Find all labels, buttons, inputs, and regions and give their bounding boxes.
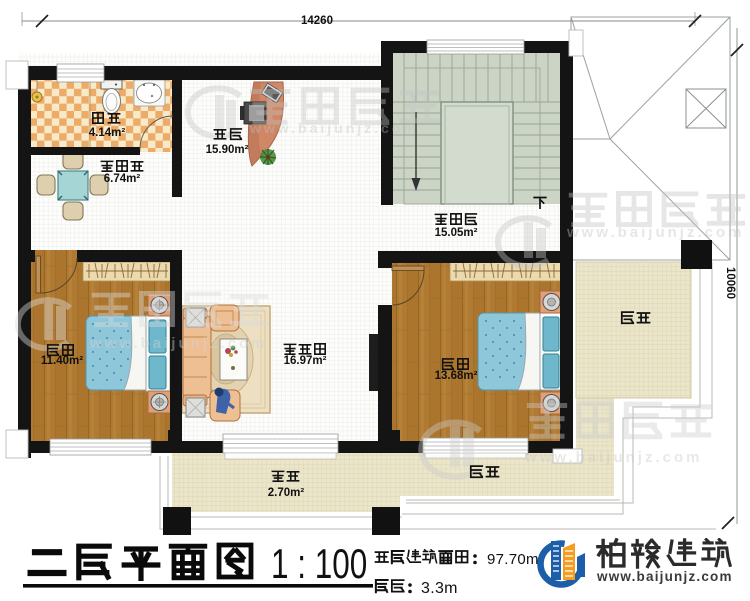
svg-text:13.68m²: 13.68m²: [435, 370, 478, 382]
svg-text:www.baijunjz.com: www.baijunjz.com: [596, 569, 733, 584]
svg-text:6.74m²: 6.74m²: [104, 173, 141, 185]
svg-text:www.baijunjz.com: www.baijunjz.com: [566, 224, 744, 241]
svg-text:www.baijunjz.com: www.baijunjz.com: [89, 335, 267, 352]
svg-text:15.05m²: 15.05m²: [435, 227, 478, 239]
svg-text:15.90m²: 15.90m²: [206, 144, 249, 156]
svg-text:1 : 100: 1 : 100: [271, 540, 367, 588]
svg-text:2.70m²: 2.70m²: [268, 487, 305, 499]
svg-text:4.14m²: 4.14m²: [89, 127, 126, 139]
svg-text:16.97m²: 16.97m²: [284, 355, 327, 367]
svg-text:97.70m²: 97.70m²: [487, 551, 544, 568]
svg-text:3.3m: 3.3m: [421, 580, 458, 597]
svg-text:14260: 14260: [301, 15, 333, 27]
svg-text:10060: 10060: [724, 267, 736, 299]
svg-text:11.40m²: 11.40m²: [41, 355, 83, 367]
svg-text:www.baijunjz.com: www.baijunjz.com: [249, 120, 419, 136]
svg-text:www.baijunjz.com: www.baijunjz.com: [524, 449, 702, 466]
